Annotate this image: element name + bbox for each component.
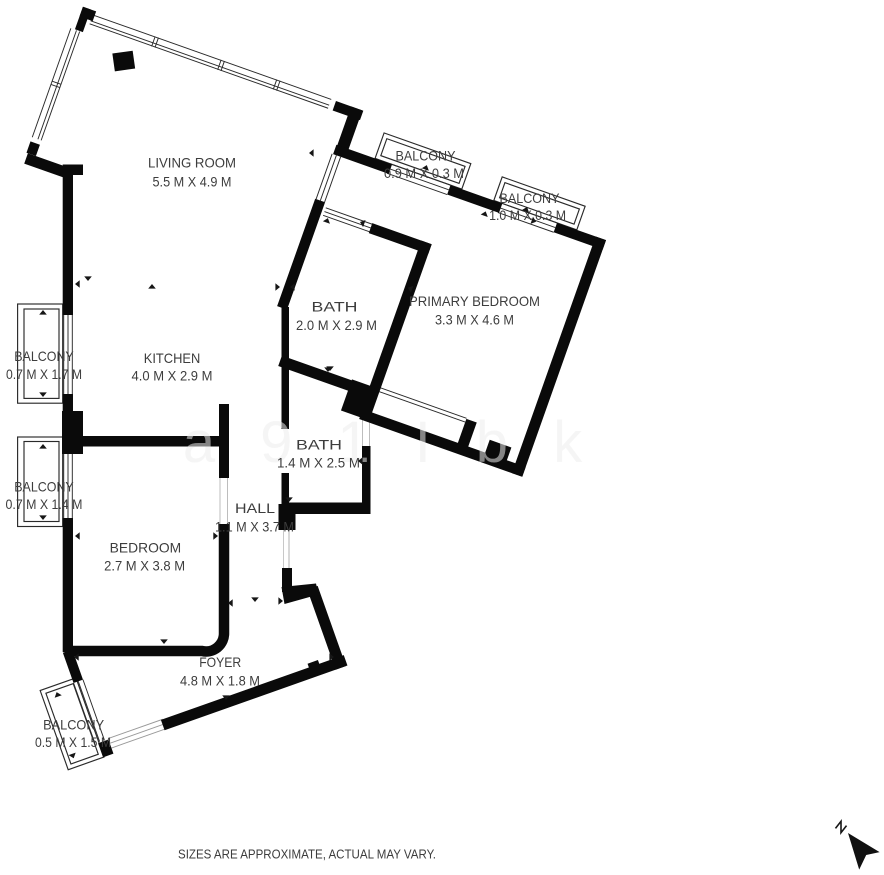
svg-text:3.3 M X 4.6 M: 3.3 M X 4.6 M [435,313,514,328]
svg-text:2.7 M X 3.8 M: 2.7 M X 3.8 M [104,559,185,574]
svg-text:0.7 M X 1.4 M: 0.7 M X 1.4 M [6,497,83,512]
svg-text:FOYER: FOYER [199,655,241,670]
svg-text:4.0 M X 2.9 M: 4.0 M X 2.9 M [132,369,213,384]
svg-text:0.5 M X 1.5 M: 0.5 M X 1.5 M [35,735,111,750]
svg-text:BATH: BATH [296,438,342,453]
svg-text:5.5 M X 4.9 M: 5.5 M X 4.9 M [153,175,232,190]
svg-text:LIVING ROOM: LIVING ROOM [148,156,236,171]
svg-text:BALCONY: BALCONY [43,718,104,733]
svg-text:BALCONY: BALCONY [14,480,74,495]
svg-text:4.8 M X 1.8 M: 4.8 M X 1.8 M [180,674,260,689]
svg-text:1.1 M X 3.7 M: 1.1 M X 3.7 M [215,520,294,535]
svg-text:SIZES ARE APPROXIMATE, ACTUAL: SIZES ARE APPROXIMATE, ACTUAL MAY VARY. [178,848,436,862]
svg-text:HALL: HALL [235,501,275,516]
svg-text:2.0 M X 2.9 M: 2.0 M X 2.9 M [296,318,377,333]
svg-text:BATH: BATH [312,300,358,315]
svg-text:a91Ibk: a91Ibk [183,410,627,475]
svg-text:BALCONY: BALCONY [14,349,74,364]
svg-text:KITCHEN: KITCHEN [144,351,201,366]
svg-text:BALCONY: BALCONY [500,191,560,206]
svg-text:BALCONY: BALCONY [396,149,456,164]
svg-text:1.4 M X 2.5 M: 1.4 M X 2.5 M [277,456,360,471]
svg-text:BEDROOM: BEDROOM [110,541,182,556]
svg-text:PRIMARY BEDROOM: PRIMARY BEDROOM [409,294,540,309]
svg-text:0.7 M X 1.7 M: 0.7 M X 1.7 M [6,367,82,382]
